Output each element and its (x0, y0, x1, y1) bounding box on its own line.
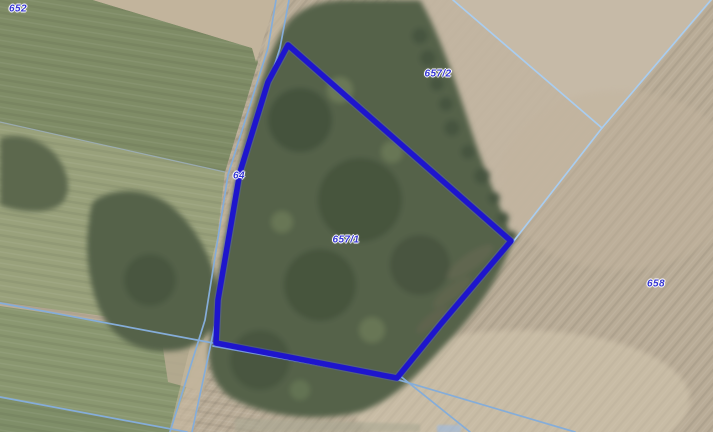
parcel-label-657-1: 657/1 (332, 235, 359, 246)
parcel-label-657-2: 657/2 (424, 69, 451, 80)
parcel-label-658: 658 (647, 279, 665, 290)
map-viewport[interactable]: 652 657/2 64 657/1 658 (0, 0, 713, 432)
parcel-label-652: 652 (9, 4, 27, 15)
partial-label-artifact (437, 425, 461, 432)
parcel-label-64: 64 (233, 171, 245, 182)
orthophoto-layer (0, 0, 713, 432)
